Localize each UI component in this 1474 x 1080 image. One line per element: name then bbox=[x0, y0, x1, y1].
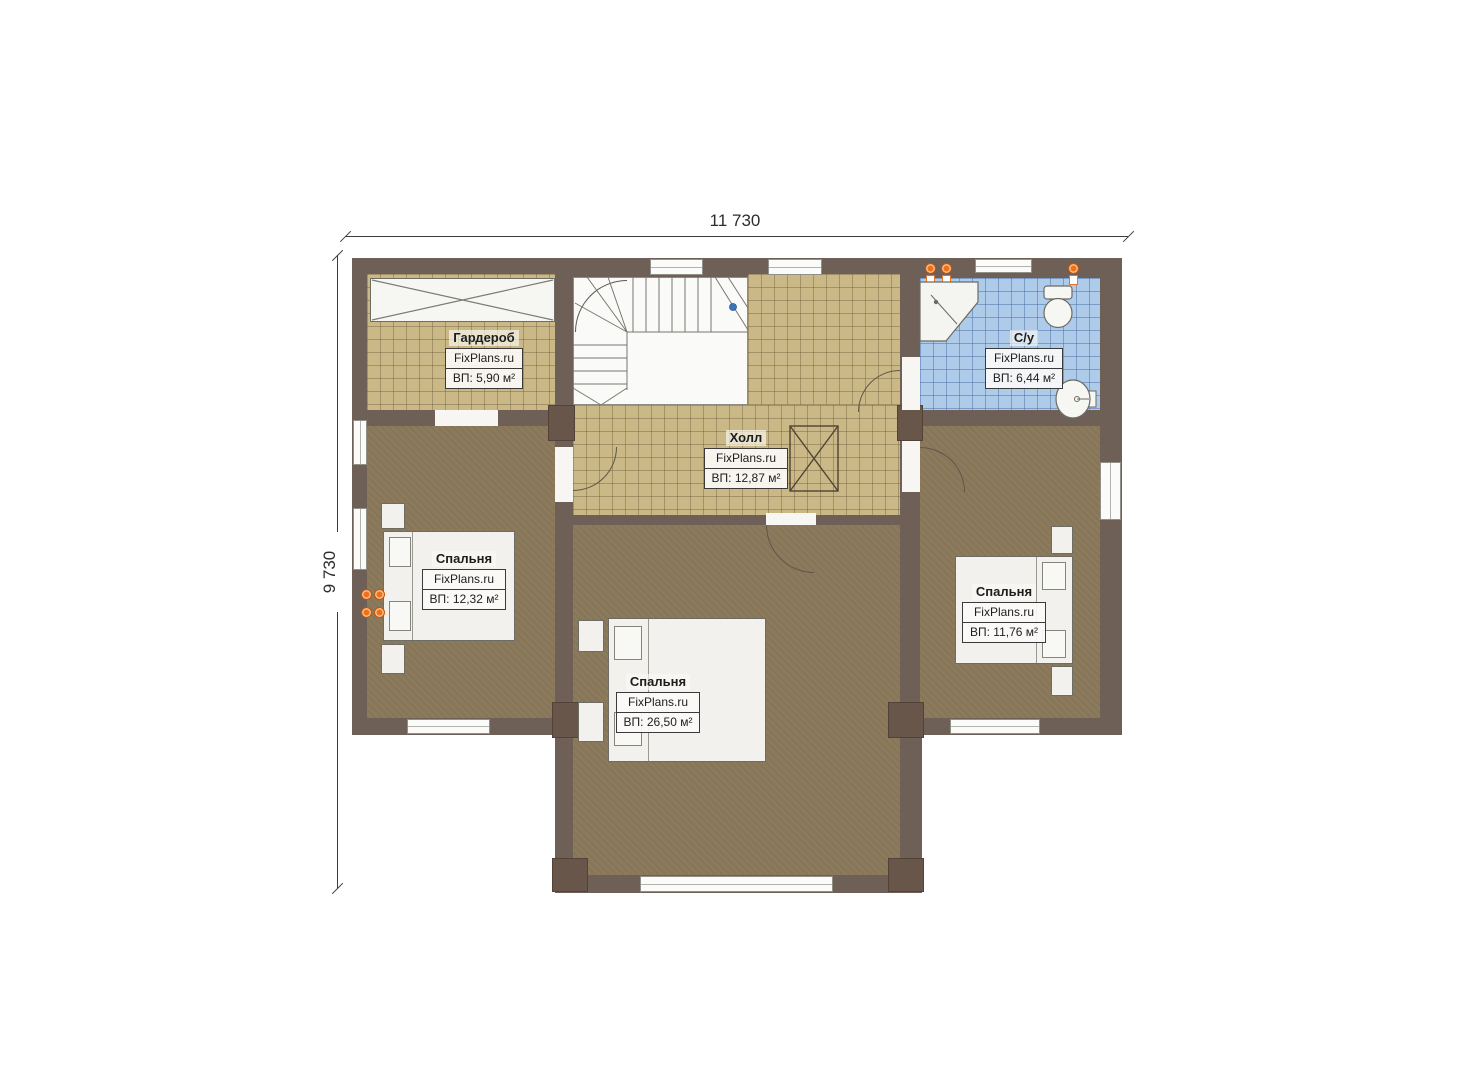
nightstand bbox=[1051, 526, 1073, 554]
radiator-dot bbox=[361, 607, 372, 618]
dimension-height-label: 9 730 bbox=[320, 532, 340, 612]
window bbox=[768, 259, 822, 275]
nightstand bbox=[1051, 666, 1073, 696]
window bbox=[353, 420, 367, 465]
room-area: ВП: 12,87 м² bbox=[705, 468, 788, 488]
window bbox=[950, 719, 1040, 734]
window bbox=[353, 508, 367, 570]
room-label-hall: Холл FixPlans.ru ВП: 12,87 м² bbox=[686, 430, 806, 489]
door-opening-wardrobe bbox=[435, 410, 498, 426]
radiator-stem bbox=[926, 275, 935, 285]
room-info-box: FixPlans.ru ВП: 26,50 м² bbox=[616, 692, 701, 733]
room-name: Гардероб bbox=[449, 330, 518, 346]
window bbox=[1100, 462, 1121, 520]
radiator-dot bbox=[1068, 263, 1079, 274]
window bbox=[640, 876, 833, 892]
watermark: FixPlans.ru bbox=[446, 349, 522, 368]
radiator-icon bbox=[1068, 263, 1079, 285]
wall-pier bbox=[897, 405, 923, 441]
radiator-stem bbox=[942, 275, 951, 285]
door-opening-bedroom-right bbox=[902, 441, 920, 492]
radiator-icon bbox=[361, 589, 385, 600]
room-name: Спальня bbox=[432, 551, 496, 567]
radiator-icon bbox=[941, 263, 952, 285]
window bbox=[975, 259, 1032, 273]
window bbox=[650, 259, 703, 275]
room-name: Спальня bbox=[972, 584, 1036, 600]
room-info-box: FixPlans.ru ВП: 5,90 м² bbox=[445, 348, 523, 389]
radiator-dot bbox=[361, 589, 372, 600]
pillow bbox=[614, 626, 642, 660]
radiator-dot bbox=[925, 263, 936, 274]
room-info-box: FixPlans.ru ВП: 11,76 м² bbox=[962, 602, 1046, 643]
wall-pier bbox=[548, 405, 575, 441]
radiator-icon bbox=[361, 607, 385, 618]
wall-pier bbox=[552, 858, 588, 892]
radiator-dot bbox=[374, 589, 385, 600]
room-info-box: FixPlans.ru ВП: 12,32 м² bbox=[422, 569, 507, 610]
nightstand bbox=[578, 620, 604, 652]
wardrobe-closet bbox=[370, 278, 555, 322]
dimension-width-label: 11 730 bbox=[675, 211, 795, 231]
radiator-dot bbox=[941, 263, 952, 274]
radiator-stem bbox=[1069, 275, 1078, 285]
room-label-wardrobe: Гардероб FixPlans.ru ВП: 5,90 м² bbox=[424, 330, 544, 389]
room-label-bedroom-left: Спальня FixPlans.ru ВП: 12,32 м² bbox=[404, 551, 524, 610]
wall-pier bbox=[888, 702, 924, 738]
room-info-box: FixPlans.ru ВП: 6,44 м² bbox=[985, 348, 1063, 389]
room-area: ВП: 6,44 м² bbox=[986, 368, 1062, 388]
wall-pier bbox=[888, 858, 924, 892]
watermark: FixPlans.ru bbox=[963, 603, 1045, 622]
room-area: ВП: 11,76 м² bbox=[963, 622, 1045, 642]
watermark: FixPlans.ru bbox=[423, 570, 506, 589]
watermark: FixPlans.ru bbox=[617, 693, 700, 712]
door-opening-bedroom-left bbox=[555, 447, 573, 502]
door-opening-bedroom-center bbox=[766, 513, 816, 525]
watermark: FixPlans.ru bbox=[705, 449, 788, 468]
radiator-dot bbox=[374, 607, 385, 618]
floorplan-page: 11 730 9 730 bbox=[0, 0, 1474, 1080]
door-opening-bathroom bbox=[902, 357, 920, 410]
window bbox=[407, 719, 490, 734]
nightstand bbox=[381, 503, 405, 529]
dimension-line-top bbox=[345, 236, 1128, 237]
room-info-box: FixPlans.ru ВП: 12,87 м² bbox=[704, 448, 789, 489]
room-area: ВП: 12,32 м² bbox=[423, 589, 506, 609]
room-name: С/у bbox=[1010, 330, 1038, 346]
nightstand bbox=[381, 644, 405, 674]
room-name: Спальня bbox=[626, 674, 690, 690]
room-label-bedroom-right: Спальня FixPlans.ru ВП: 11,76 м² bbox=[944, 584, 1064, 643]
radiator-icon bbox=[925, 263, 936, 285]
room-name: Холл bbox=[726, 430, 767, 446]
room-label-bathroom: С/у FixPlans.ru ВП: 6,44 м² bbox=[964, 330, 1084, 389]
watermark: FixPlans.ru bbox=[986, 349, 1062, 368]
room-area: ВП: 5,90 м² bbox=[446, 368, 522, 388]
room-label-bedroom-center: Спальня FixPlans.ru ВП: 26,50 м² bbox=[598, 674, 718, 733]
room-area: ВП: 26,50 м² bbox=[617, 712, 700, 732]
